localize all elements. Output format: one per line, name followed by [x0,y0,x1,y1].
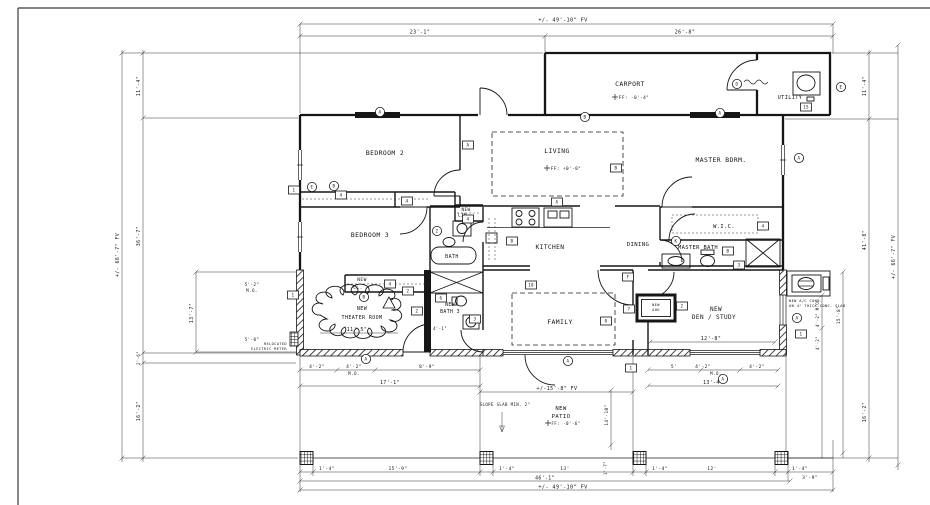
dim-bot-p1: 1'-4" [319,466,335,472]
svg-text:15: 15 [803,105,809,110]
dim-left-outer: +/- 66'-7" FV [115,233,121,277]
ref-tag: A [463,141,474,149]
svg-text:B: B [333,184,336,189]
dim-chain-r-b: 4'-2" [695,364,711,370]
dim-theater-mo: M.O. [246,288,258,293]
floor-plan-drawing: CARPORT FF: -0'-4" UTILITY BEDROOM 2 LIV… [0,0,930,505]
svg-text:10: 10 [528,283,534,288]
dim-chain-l-mo: M.O. [348,371,360,376]
patio-ff: FF: -0'-6" [551,421,580,426]
ref-tag: B [723,247,734,255]
svg-text:A: A [798,156,801,161]
svg-text:A: A [719,111,722,116]
dim-chain-l-c: 8'-9" [419,364,435,370]
ref-tag: 8 [601,317,612,325]
svg-text:B: B [511,239,514,244]
living-ff: FF: +0'-0" [551,166,581,172]
dim-theater-width: 11'-5" [347,327,367,333]
svg-text:4: 4 [340,193,343,198]
ref-tag: 1 [796,330,807,338]
dim-ac-15-8: 15'-8" [836,306,842,324]
porch-post [775,452,788,465]
svg-text:2: 2 [416,309,419,314]
dim-right-11-4: 11'-4" [862,76,868,96]
svg-text:B: B [584,115,587,120]
floor-plan-page: CARPORT FF: -0'-4" UTILITY BEDROOM 2 LIV… [0,0,930,505]
ref-tag: 1 [288,291,299,299]
dim-patio-width: +/-15'-8" FV [537,386,578,392]
dim-bot-p3: 1'-4" [652,466,668,472]
room-label-dining: DINING [627,242,650,248]
svg-text:A: A [379,110,382,115]
ref-tag: E [836,82,845,91]
svg-text:K: K [675,239,678,244]
ref-tag: A [361,354,370,363]
ref-tag: B [329,181,338,190]
ref-tag: B [611,164,622,172]
svg-text:E: E [840,85,843,90]
ref-tag: 2 [432,226,441,235]
dim-bot-3-9: 3'-9" [802,475,818,481]
dim-chain-r-c: 4'-2" [749,364,765,370]
electric-meter [290,332,298,346]
room-label-bedroom2: BEDROOM 2 [366,149,404,157]
dim-bot-15-9: 15'-9" [389,466,408,472]
svg-text:1: 1 [800,332,803,337]
room-label-bath3-1: NEW [445,302,455,308]
room-label-utility: UTILITY [778,95,803,101]
dim-left-mid: 36'-7" [136,226,142,246]
dim-theater-5-0: 5'-0" [245,337,260,342]
dim-chain-l-b: 4'-2" [346,364,362,370]
label-new-lin-1: NEW [462,207,471,213]
label-ahu-1: NEW [652,303,660,307]
dim-bot-46-1: 46'-1" [535,476,555,482]
dim-top-left: 23'-1" [410,30,430,36]
dim-bot-p2: 1'-4" [499,466,515,472]
dim-chain-r-a: 5' [671,364,677,370]
dim-theater-13-7: 13'-7" [189,303,195,323]
ref-tag: 4 [758,222,769,230]
ref-tag: A [792,313,801,322]
svg-text:A: A [365,357,368,362]
dim-right-16-2: 16'-2" [862,402,868,422]
ref-tag: 2 [677,302,688,310]
dim-left-11-4: 11'-4" [136,76,142,96]
svg-text:4: 4 [389,282,392,287]
annotation-slope: SLOPE SLAB MIN. 2" [480,402,531,407]
room-label-master-bath: MASTER BATH [678,245,718,251]
dim-theater-5-2: 5'-2" [245,282,260,287]
ref-tag: A [794,153,803,162]
room-label-patio-1: NEW [555,406,567,412]
room-label-patio-2: PATIO [552,414,571,420]
annotation-meter-1: RELOCATED [264,342,287,346]
ref-tag: D [732,79,741,88]
ac-condenser [787,271,830,296]
carport-ff: FF: -0'-4" [619,95,649,101]
dim-top-overall: +/- 49'-10" FV [538,18,587,24]
ref-tag: B [359,292,368,301]
dim-ac-4-2-mo: 4'-2" M.O. [815,299,820,327]
svg-text:4: 4 [406,199,409,204]
kitchen-range [512,208,539,227]
ref-tag: 1 [626,364,637,372]
svg-text:A: A [467,143,470,148]
svg-text:3: 3 [738,263,741,268]
ref-tag: 15 [801,103,812,111]
svg-text:A: A [722,377,725,382]
room-label-bath3-2: BATH 3 [440,309,460,315]
ref-tag: 2 [412,307,423,315]
svg-text:1: 1 [293,188,296,193]
svg-text:2: 2 [436,229,439,234]
svg-text:2: 2 [681,304,684,309]
ref-tag: 4 [463,215,474,223]
ref-tag: E [307,182,316,191]
svg-text:4: 4 [762,224,765,229]
ref-tag: A [718,374,727,383]
ref-tag: A [715,108,724,117]
dim-bath3: 4'-1" [433,326,447,331]
room-label-den-1: NEW [710,306,722,313]
insulation-squiggle [744,80,768,84]
dim-bot-12: 12' [707,466,717,472]
annotation-meter-2: ELECTRIC METER [251,347,287,351]
ref-tag: 4 [336,191,347,199]
svg-text:A: A [567,359,570,364]
label-new-cl-1: NEW [357,277,367,283]
ref-tag: B [507,237,518,245]
ref-tag: 3 [470,315,481,323]
ref-tag: 6 [436,294,447,302]
room-label-den-2: DEN / STUDY [692,314,736,321]
svg-text:A: A [556,200,559,205]
dim-top-right: 26'-8" [675,30,695,36]
svg-text:A: A [796,316,799,321]
svg-text:1: 1 [630,366,633,371]
dim-right-mid: 41'-8" [862,230,868,250]
svg-text:B: B [727,249,730,254]
dim-bot-overall: +/- 49'-10" FV [538,485,587,491]
dim-bot-p4: 1'-4" [792,466,808,472]
ref-tag: A [552,198,563,206]
svg-text:6: 6 [440,296,443,301]
dim-left-16-2: 16'-2" [136,401,142,421]
dim-chain-l-total: 17'-1" [380,380,400,386]
svg-text:B: B [615,166,618,171]
room-label-bedroom3: BEDROOM 3 [351,231,389,239]
ref-tag: K [671,236,680,245]
dim-bot-13: 13' [560,466,570,472]
svg-text:7: 7 [628,307,631,312]
ref-tag: 4 [385,280,396,288]
dim-patio-depth: 14'-10" [604,404,610,425]
dim-left-2-6: 2'-6" [136,351,141,365]
dim-chain-l-a: 4'-2" [309,364,325,370]
svg-text:1: 1 [292,293,295,298]
ref-tag: 4 [402,197,413,205]
svg-text:2: 2 [407,289,410,294]
label-new-cl-2: CL. [353,285,363,291]
room-label-theater-2: THEATER ROOM [342,315,383,321]
porch-post [300,452,313,465]
room-label-bath: BATH [445,254,459,260]
ref-tag: A [375,107,384,116]
porch-post [480,452,493,465]
dim-ac-4-2: 4'-2" [815,336,820,350]
porch-post [633,452,646,465]
ref-tag: 2 [403,287,414,295]
svg-text:F: F [627,275,630,280]
exterior-walls [297,53,831,356]
svg-text:E: E [311,185,314,190]
room-label-wic: W.I.C. [713,224,735,230]
ref-tag: 3 [734,261,745,269]
svg-text:D: D [736,82,739,87]
room-label-family: FAMILY [547,318,573,326]
dim-den-width: 12'-8" [701,336,721,342]
room-label-theater-1: NEW [357,306,368,312]
svg-text:8: 8 [605,319,608,324]
ref-tag: A [563,356,572,365]
room-label-master-bdrm: MASTER BDRM. [696,156,747,164]
ref-tag: F [623,273,634,281]
svg-text:3: 3 [474,317,477,322]
kitchen-sink [544,208,572,227]
ref-tag: 10 [526,281,537,289]
svg-text:B: B [363,295,366,300]
svg-text:4: 4 [467,217,470,222]
slope-arrow [500,412,505,432]
dim-bot-1-7: 1'-7" [603,461,608,475]
ref-tag: B [580,112,589,121]
room-label-kitchen: KITCHEN [536,244,565,251]
dim-right-outer: +/- 66'-7" FV [891,235,897,279]
room-label-living: LIVING [544,147,570,155]
ref-tag: 1 [289,186,300,194]
label-ahu-2: AHU [652,308,660,312]
ref-tag: 7 [624,305,635,313]
room-label-carport: CARPORT [615,80,645,88]
